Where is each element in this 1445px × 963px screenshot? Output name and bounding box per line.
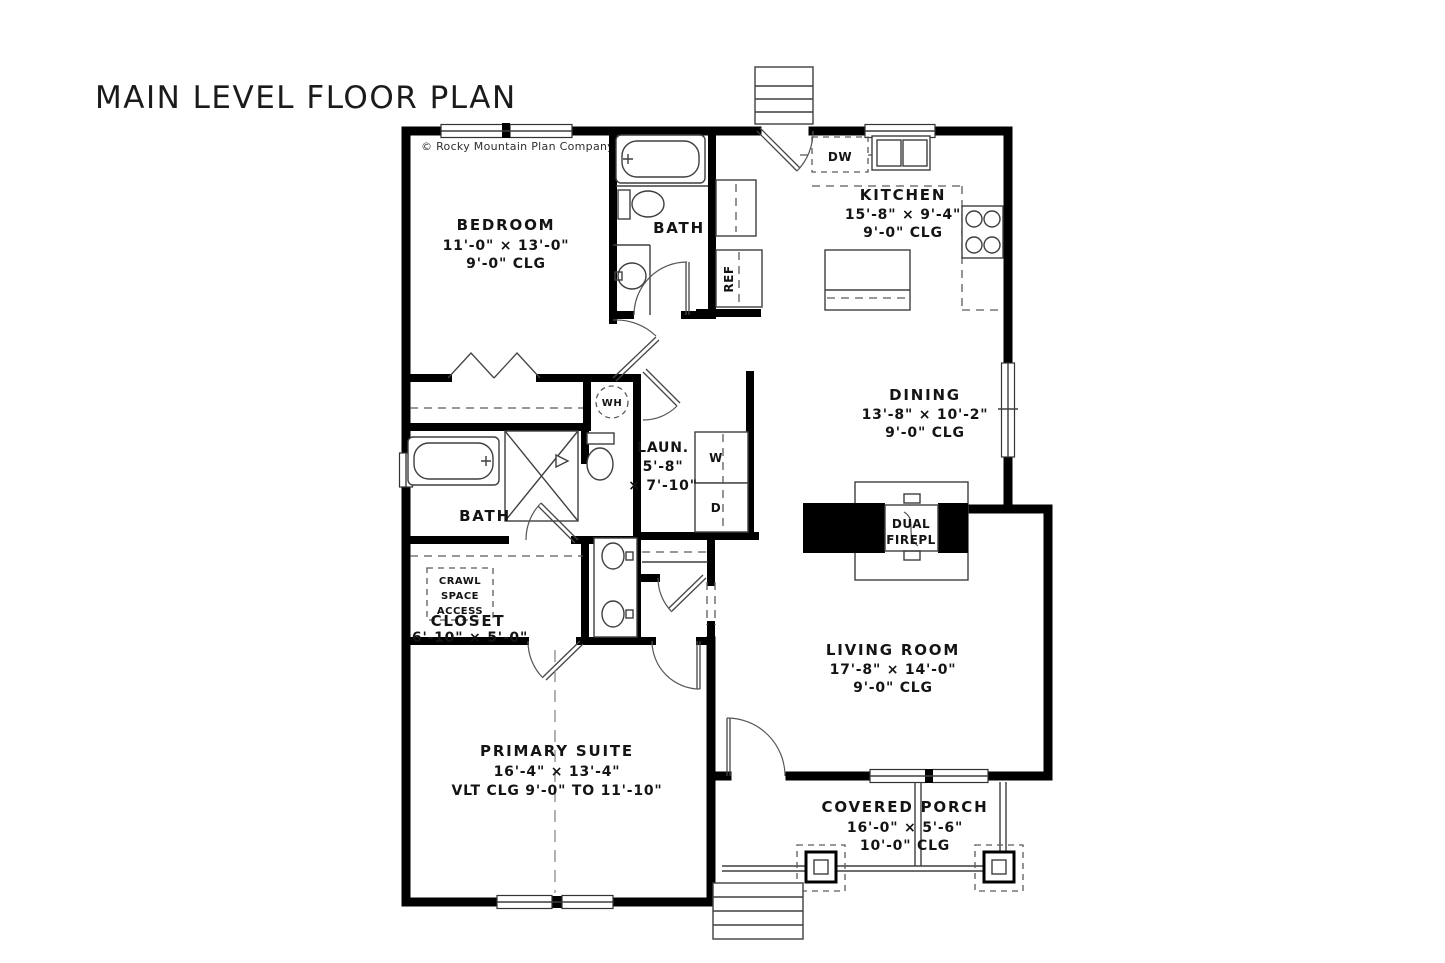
svg-text:16'-0" × 5'-6": 16'-0" × 5'-6" <box>847 820 963 836</box>
svg-text:9'-0" CLG: 9'-0" CLG <box>863 225 943 241</box>
laundry-fixtures: W D <box>695 432 748 532</box>
bedroom-label: BEDROOM <box>457 216 556 234</box>
laundry-label: LAUN. <box>637 440 689 456</box>
closet-label: CLOSET <box>431 612 506 630</box>
pantry-ref: REF <box>716 180 762 307</box>
svg-text:13'-8" × 10'-2": 13'-8" × 10'-2" <box>862 407 989 423</box>
floor-plan-drawing: MAIN LEVEL FLOOR PLAN © Rocky Mountain P… <box>0 0 1445 963</box>
laundry-door <box>643 372 677 406</box>
kitchen-island <box>825 250 910 310</box>
dishwasher-label: DW <box>828 150 852 164</box>
svg-text:17'-8" × 14'-0": 17'-8" × 14'-0" <box>830 662 957 678</box>
fireplace-label-1: DUAL <box>892 517 930 531</box>
svg-text:11'-0" × 13'-0": 11'-0" × 13'-0" <box>443 238 570 254</box>
dining-label: DINING <box>889 386 961 404</box>
closet-door <box>543 641 580 677</box>
water-heater: WH <box>596 386 628 418</box>
fireplace-label-2: FIREPL <box>886 533 936 547</box>
svg-text:10'-0" CLG: 10'-0" CLG <box>860 838 950 854</box>
interior-walls <box>406 131 757 641</box>
kitchen-label: KITCHEN <box>860 186 946 204</box>
toilet-icon <box>618 190 630 219</box>
coat-closet-door <box>672 578 706 611</box>
bath1-label: BATH <box>653 219 705 237</box>
svg-text:× 7'-10": × 7'-10" <box>628 478 698 494</box>
refrigerator-label: REF <box>722 265 736 292</box>
crawl-label-2: SPACE <box>441 591 479 602</box>
porch-column-right <box>984 852 1014 882</box>
svg-text:6'-10" × 5'-0": 6'-10" × 5'-0" <box>412 630 528 646</box>
vanity-sink-2 <box>602 601 624 627</box>
living-label: LIVING ROOM <box>826 641 960 659</box>
page-title: MAIN LEVEL FLOOR PLAN <box>95 80 517 116</box>
svg-text:9'-0" CLG: 9'-0" CLG <box>466 256 546 272</box>
primary-label: PRIMARY SUITE <box>480 742 634 760</box>
svg-text:15'-8" × 9'-4": 15'-8" × 9'-4" <box>845 207 961 223</box>
bifold-doors <box>448 353 540 378</box>
front-steps <box>755 67 813 124</box>
porch-column-left <box>806 852 836 882</box>
svg-text:VLT CLG 9'-0" TO 11'-10": VLT CLG 9'-0" TO 11'-10" <box>451 783 662 799</box>
front-door <box>757 131 797 171</box>
crawl-label-1: CRAWL <box>439 576 481 587</box>
svg-text:9'-0" CLG: 9'-0" CLG <box>853 680 933 696</box>
water-heater-label: WH <box>602 398 622 409</box>
hall-closet <box>642 552 715 689</box>
living-entry <box>727 718 785 776</box>
floor-plan-page: MAIN LEVEL FLOOR PLAN © Rocky Mountain P… <box>0 0 1445 963</box>
vanity-sink-1 <box>602 543 624 569</box>
svg-text:5'-8": 5'-8" <box>643 459 684 475</box>
toilet2-icon <box>587 433 614 444</box>
svg-text:9'-0" CLG: 9'-0" CLG <box>885 425 965 441</box>
fireplace: DUAL FIREPL <box>803 482 968 580</box>
dryer-icon <box>695 483 748 532</box>
washer-label: W <box>709 451 723 465</box>
svg-text:16'-4" × 13'-4": 16'-4" × 13'-4" <box>494 764 621 780</box>
porch-label: COVERED PORCH <box>822 798 989 816</box>
bath2-label: BATH <box>459 507 511 525</box>
dryer-label: D <box>711 501 721 515</box>
